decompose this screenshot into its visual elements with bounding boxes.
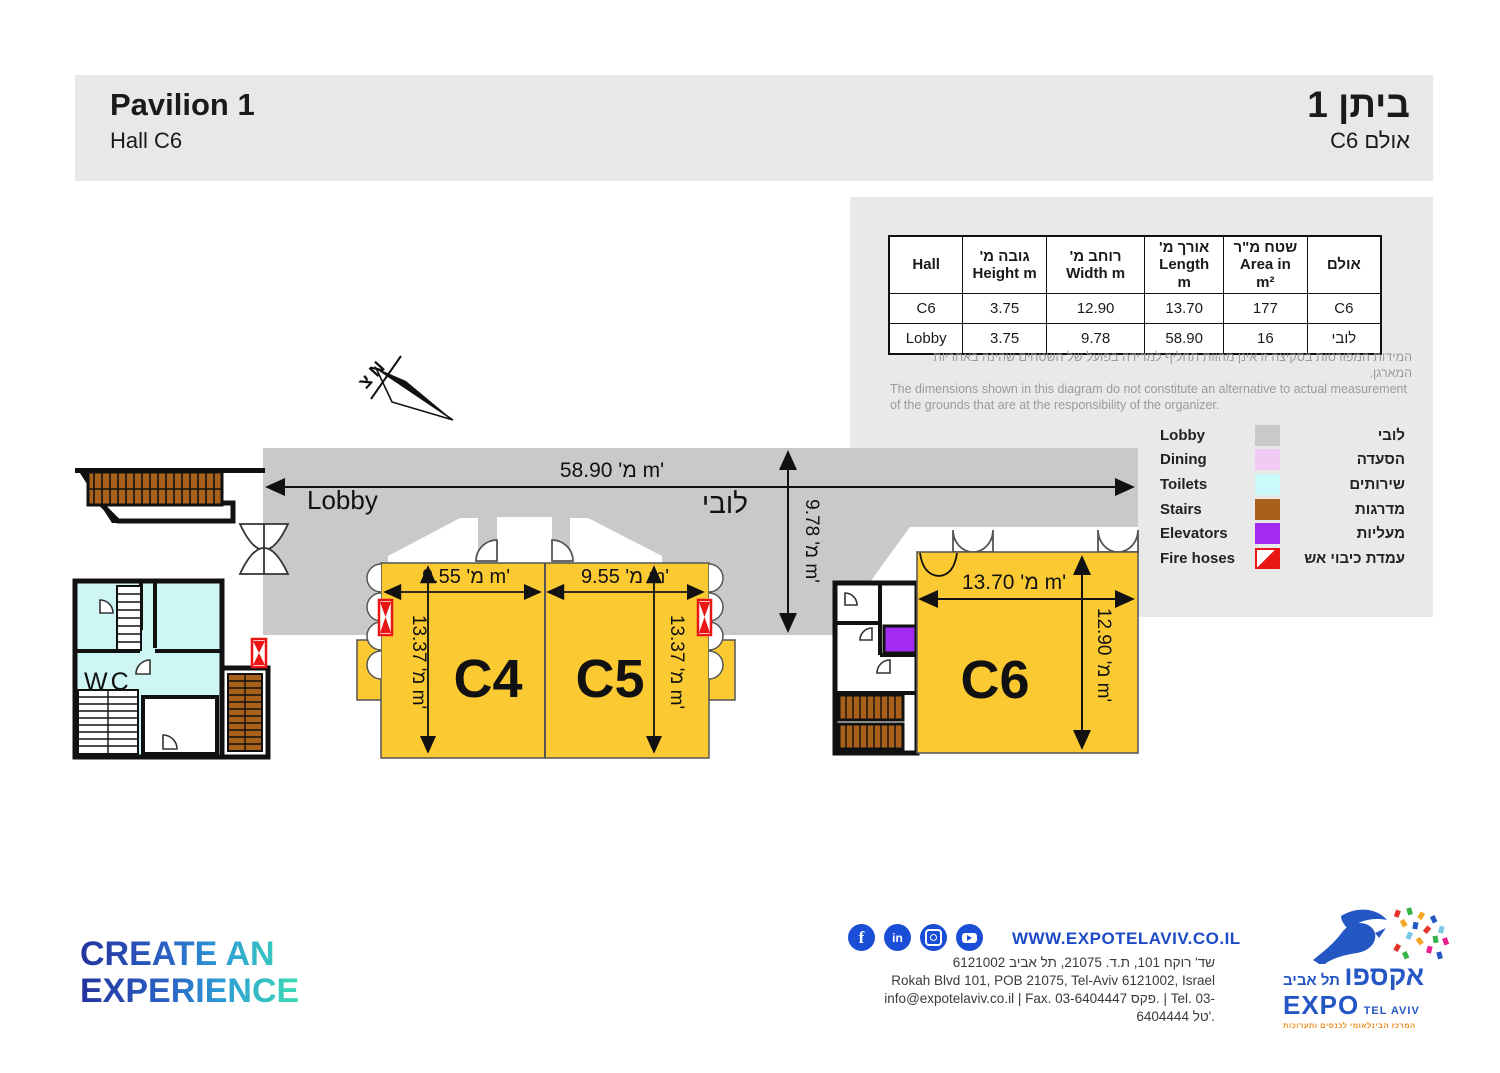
elevator: [884, 626, 916, 653]
lobby-height-dim: מ' 9.78 m': [801, 499, 822, 583]
north-label: צ N: [354, 358, 388, 393]
lobby-width-dim: מ' 58.90 m': [560, 459, 664, 482]
c4-height-dim: מ' 13.37 m': [408, 615, 429, 709]
lobby-label-hebrew: לובי: [702, 488, 748, 519]
contact-line[interactable]: info@expotelaviv.co.il | Fax. 03-6404447…: [845, 990, 1215, 1026]
north-arrow: צ N: [354, 356, 453, 420]
expo-logo: אקספו תל אביב EXPO TEL AVIV המרכז הבינלא…: [1283, 906, 1453, 1030]
fire-hose-icon: [252, 639, 266, 667]
confetti: [1393, 907, 1449, 959]
logo-english: EXPO TEL AVIV: [1283, 992, 1453, 1018]
youtube-icon[interactable]: [956, 924, 983, 951]
c5-width-dim: מ' 9.55 m': [581, 566, 669, 588]
facebook-icon[interactable]: f: [848, 924, 875, 951]
cutout-center: [497, 517, 552, 563]
slogan: CREATE AN EXPERIENCE: [80, 936, 299, 1009]
social-icons: f in: [848, 924, 983, 951]
c5-height-dim: מ' 13.37 m': [666, 615, 687, 709]
hall-c4-label: C4: [453, 649, 522, 709]
hall-c6: מ' 13.70 m' מ' 12.90 m' C6: [917, 530, 1138, 753]
service-rooms-block: [835, 583, 917, 753]
pegasus-head: [1375, 928, 1386, 938]
hall-c5-label: C5: [575, 649, 644, 709]
address-hebrew: שד' רוקח 101, ת.ד. 21075, תל אביב 612100…: [845, 954, 1215, 972]
instagram-icon[interactable]: [920, 924, 947, 951]
c6-height-dim: מ' 12.90 m': [1093, 608, 1114, 702]
halls-c4-c5: מ' 9.55 m' מ' 9.55 m' מ' 13.37 m' מ' 13.…: [357, 563, 735, 758]
logo-hebrew: אקספו תל אביב: [1283, 963, 1453, 990]
wc-room: [143, 697, 217, 754]
c4-width-dim: מ' 9.55 m': [422, 566, 510, 588]
hall-c6-label: C6: [960, 650, 1029, 710]
address-english: Rokah Blvd 101, POB 21075, Tel-Aviv 6121…: [845, 972, 1215, 990]
linkedin-icon[interactable]: in: [884, 924, 911, 951]
stairs-top-left: [75, 468, 265, 523]
wc-label: WC: [84, 668, 132, 696]
address-block: שד' רוקח 101, ת.ד. 21075, תל אביב 612100…: [845, 954, 1215, 1026]
floor-plan: מ' 58.90 m' Lobby לובי מ' 9.78 m': [0, 0, 1500, 1073]
lobby-label: Lobby: [307, 485, 378, 515]
website-link[interactable]: WWW.EXPOTELAVIV.CO.IL: [1012, 929, 1241, 949]
c6-width-dim: מ' 13.70 m': [962, 571, 1066, 594]
pegasus-body: [1313, 923, 1375, 964]
pegasus-graphic: [1283, 906, 1453, 964]
logo-tagline: המרכז הבינלאומי לכנסים ותערוכות: [1283, 1021, 1453, 1030]
